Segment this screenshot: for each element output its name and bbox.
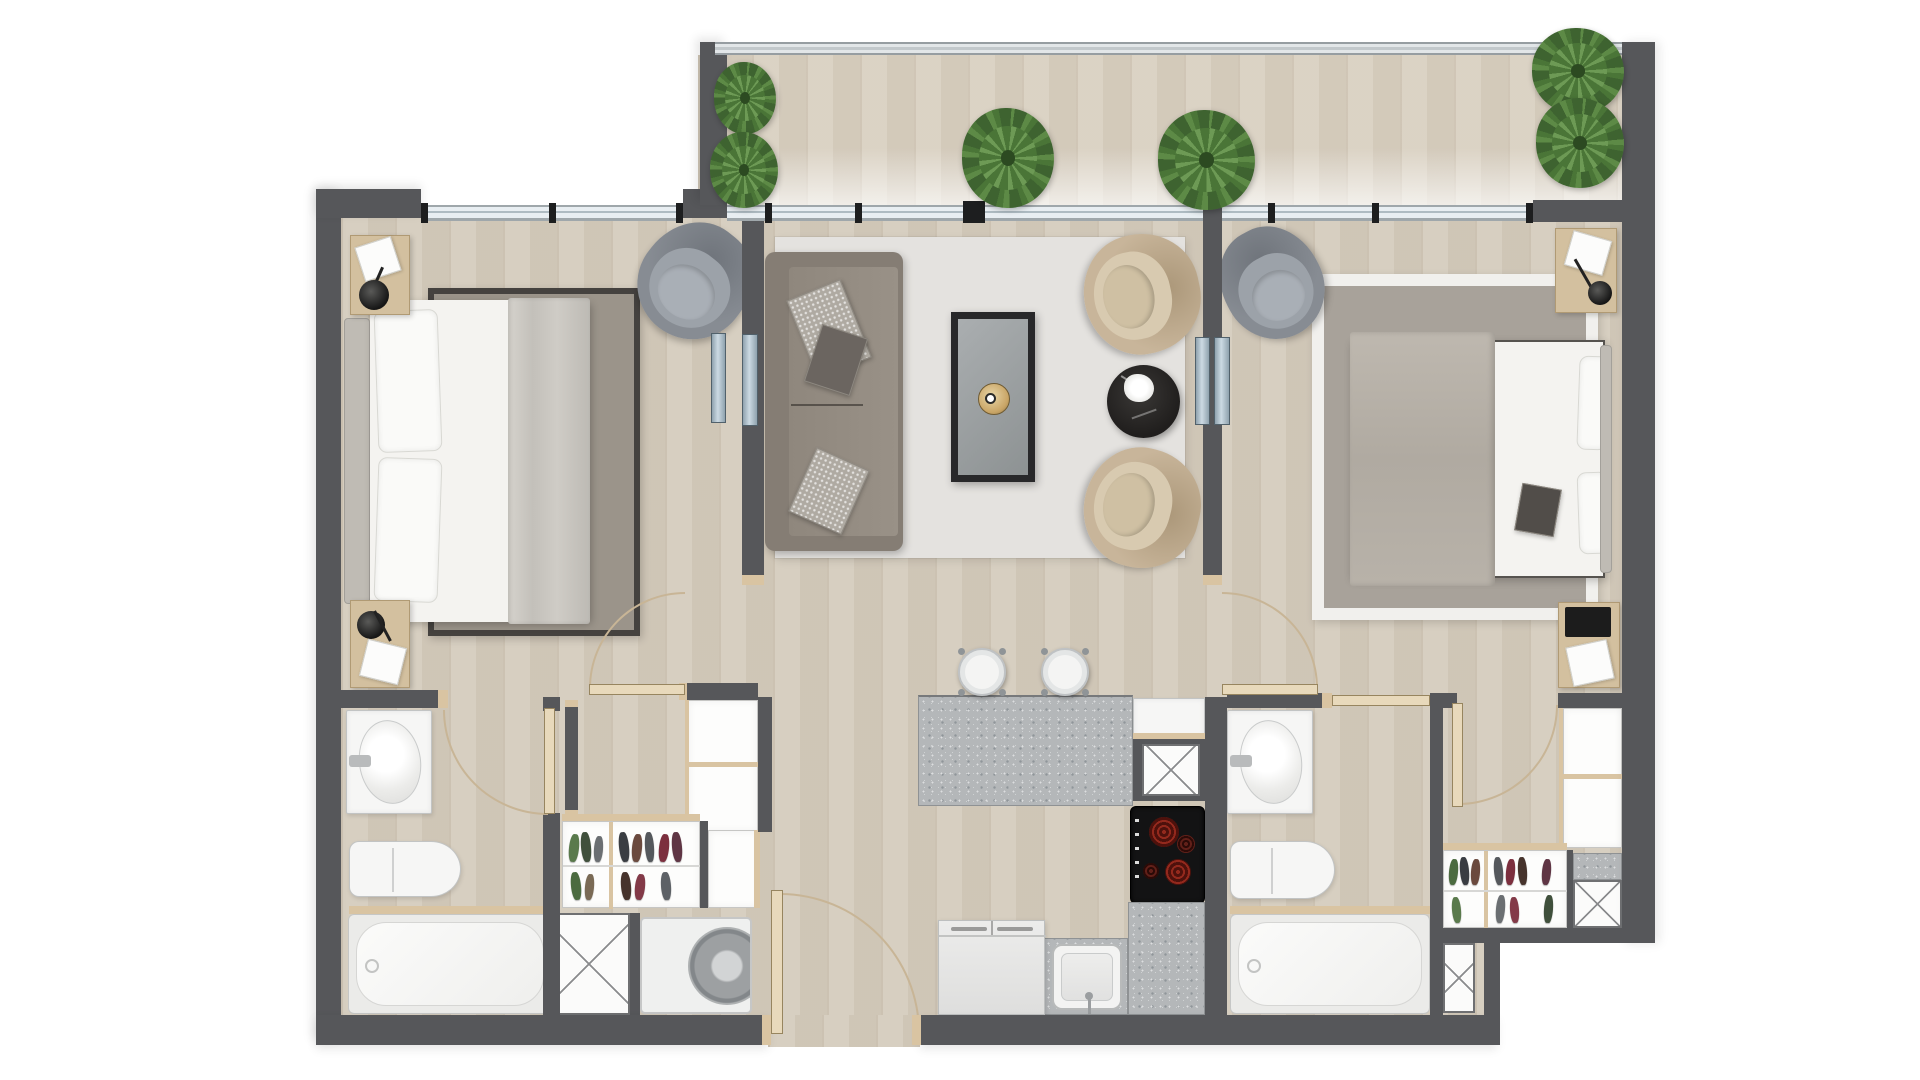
duct-2 <box>1573 880 1622 928</box>
kitchen-counter-right <box>1128 902 1205 1015</box>
burner <box>1177 835 1195 853</box>
shoe-rack-1-edge <box>562 814 700 821</box>
bathroom-1-toilet <box>349 841 461 897</box>
hall-cabinet <box>708 830 760 908</box>
shoes <box>631 834 643 863</box>
toilet-tank-line <box>392 848 394 892</box>
shoes <box>671 832 684 863</box>
bed-2-duvet <box>1350 332 1495 586</box>
shoes <box>580 832 593 863</box>
bathroom-1-vanity <box>346 710 432 814</box>
wall <box>630 913 640 1015</box>
nightstand-2b <box>1558 602 1620 688</box>
shoes <box>1509 897 1520 924</box>
door-jamb <box>1322 693 1332 708</box>
palm-plant <box>1158 110 1255 210</box>
glass-panel-bedroom-1 <box>711 333 726 423</box>
shoes <box>1493 857 1504 886</box>
burner <box>1149 817 1179 847</box>
fridge-handle <box>997 927 1033 931</box>
window-mullion <box>1526 203 1533 223</box>
stool-knob <box>1082 648 1089 655</box>
duct-3 <box>1443 943 1475 1013</box>
washer-drum <box>688 927 752 1005</box>
bathroom-2-bathtub <box>1230 914 1430 1014</box>
potted-plant <box>714 62 776 134</box>
shoes <box>1459 857 1470 886</box>
stool-knob <box>999 648 1006 655</box>
sofa-seam <box>791 404 863 406</box>
closet-2-shelf-edge <box>1563 774 1622 779</box>
wall-bathroom-1-right-lower <box>543 813 560 1015</box>
wall-bedroom-1-bathroom-1 <box>341 690 438 708</box>
palm-plant <box>962 108 1054 208</box>
notebook <box>1565 639 1614 687</box>
wall-step-vertical <box>1484 928 1500 1045</box>
wall-left-outer <box>316 189 341 1040</box>
wall-balcony-bedroom-2-divider <box>1533 200 1622 222</box>
stool-knob <box>1082 689 1089 696</box>
bed-2-headboard <box>1600 345 1612 573</box>
fridge-handle <box>951 927 987 931</box>
bedroom-2-door <box>1222 684 1318 695</box>
book <box>1564 230 1612 276</box>
wall-bottom-right <box>920 1015 1497 1045</box>
door-jamb <box>438 690 448 708</box>
hall-cabinet-edge <box>754 830 760 908</box>
duct-1 <box>548 913 630 1015</box>
wall-bottom-left <box>316 1015 768 1045</box>
window-mullion <box>765 203 772 223</box>
nightstand-2a <box>1555 228 1617 313</box>
shoe-rack-2-edge <box>1443 843 1567 850</box>
wall-top-bedroom-1 <box>316 189 421 218</box>
glass-panel-bedroom-2 <box>1214 337 1230 425</box>
tub-2-ledge <box>1230 906 1430 914</box>
stool-knob <box>1041 689 1048 696</box>
shoes <box>568 834 581 863</box>
bar-stool <box>958 648 1006 696</box>
refrigerator <box>938 920 1045 1015</box>
shoes <box>1448 859 1459 886</box>
shoes <box>1451 897 1462 924</box>
tray <box>1565 607 1611 637</box>
wall-cap <box>742 575 764 585</box>
wall-bathroom-2-closet-2 <box>1430 693 1443 1015</box>
wall-step-horizontal <box>1497 928 1622 943</box>
entry-door <box>771 890 783 1034</box>
bar-stool <box>1041 648 1089 696</box>
kitchen-cabinet <box>1133 698 1205 738</box>
bathroom-2-vanity <box>1227 710 1313 814</box>
kitchen-island <box>918 695 1133 806</box>
shoes <box>1517 857 1528 886</box>
wall <box>700 821 708 908</box>
burner <box>1143 863 1159 879</box>
toilet-tank-line <box>1271 848 1273 894</box>
wall-closet-2-bottom <box>1430 928 1497 943</box>
shoe-shelf-line <box>563 865 701 867</box>
fridge-split <box>991 921 993 935</box>
shoes <box>634 874 647 901</box>
faucet-stem <box>1088 998 1091 1014</box>
door-jamb <box>762 1015 771 1045</box>
window-mullion <box>549 203 556 223</box>
gold-tray <box>978 383 1010 415</box>
shoes <box>1541 859 1552 886</box>
shoes <box>620 872 632 901</box>
sliding-door-frame <box>963 201 985 223</box>
closet-1-shelf-edge <box>688 762 758 767</box>
door-jamb <box>912 1015 921 1045</box>
shoe-rack-1 <box>562 821 700 908</box>
shoes <box>1495 895 1506 924</box>
bedroom-1-door <box>589 684 685 695</box>
floor-plan <box>0 0 1920 1080</box>
stool-knob <box>999 689 1006 696</box>
bathroom-1-door <box>544 708 555 814</box>
shoes <box>644 832 655 863</box>
tub-faucet <box>365 959 379 973</box>
potted-plant <box>710 132 778 208</box>
closet-2-counter <box>1573 853 1622 880</box>
cooktop-controls <box>1135 819 1139 889</box>
bed-2-accent-pillow <box>1514 483 1562 537</box>
wall-kitchen-bathroom-2 <box>1205 697 1227 1015</box>
bed-1-pillow <box>374 309 443 453</box>
wall-bathroom-2-top <box>1227 693 1322 708</box>
fridge-body-line <box>939 935 1046 937</box>
plant-core <box>1571 64 1586 78</box>
window-mullion <box>421 203 428 223</box>
cooktop <box>1130 806 1205 904</box>
wall-pier-cap <box>565 700 578 707</box>
shoes <box>1505 859 1516 886</box>
closet-1-front-trim <box>685 700 689 832</box>
plant-core <box>740 92 750 104</box>
faucet <box>1230 755 1252 767</box>
stool-knob <box>1041 648 1048 655</box>
shoe-rack-2 <box>1443 850 1567 928</box>
kitchen-duct <box>1142 744 1200 796</box>
bed-1-blanket <box>508 298 590 624</box>
window-mullion <box>676 203 683 223</box>
dish <box>1588 281 1612 305</box>
bed-1-headboard <box>344 318 370 604</box>
kitchen-sink <box>1052 944 1122 1010</box>
tub-basin <box>1238 922 1422 1006</box>
plant-core <box>1199 152 1215 168</box>
nightstand-1b <box>350 600 410 688</box>
burner <box>1165 859 1191 885</box>
flower-vase <box>1124 374 1154 402</box>
bathroom-2-door <box>1332 695 1430 706</box>
wall-cap <box>1203 575 1222 585</box>
shoe-shelf-line <box>1444 890 1568 892</box>
notebook <box>359 639 407 686</box>
shoes <box>570 872 583 901</box>
stool-knob <box>958 648 965 655</box>
shoes <box>1543 895 1554 924</box>
shoes <box>660 872 672 901</box>
table-lamp <box>359 280 389 310</box>
balcony-railing <box>715 42 1622 55</box>
glass-panel-bedroom-2 <box>1195 337 1210 425</box>
bathroom-1-bathtub <box>348 914 552 1014</box>
bathroom-2-toilet <box>1230 841 1335 899</box>
wall-closet-1-right <box>758 697 772 832</box>
marble-streak <box>1132 409 1157 419</box>
nightstand-1a <box>350 235 410 315</box>
window-mullion <box>1372 203 1379 223</box>
tub-basin <box>356 922 544 1006</box>
closet-2-door <box>1452 703 1463 807</box>
tray-handle <box>985 393 996 404</box>
wall-pier <box>565 700 578 817</box>
shoes <box>584 874 595 901</box>
wall-right-outer <box>1622 42 1655 943</box>
window-mullion <box>855 203 862 223</box>
wall-bedroom-1-door-stub <box>687 683 758 700</box>
shoes <box>658 834 671 863</box>
window-mullion <box>1268 203 1275 223</box>
shoes <box>617 832 630 863</box>
washing-machine <box>640 917 752 1014</box>
bed-1-pillow <box>374 457 443 603</box>
faucet <box>349 755 371 767</box>
wall-pier-cap <box>565 810 578 817</box>
closet-2-front-trim <box>1559 708 1563 848</box>
tub-faucet <box>1247 959 1261 973</box>
tub-1-ledge <box>349 906 551 914</box>
glass-panel-bedroom-1 <box>742 334 758 426</box>
corner-plant <box>1536 98 1624 188</box>
wall-closet-2-top-right <box>1558 693 1622 708</box>
stool-knob <box>958 689 965 696</box>
shoes <box>1470 859 1481 886</box>
shoes <box>593 836 604 863</box>
